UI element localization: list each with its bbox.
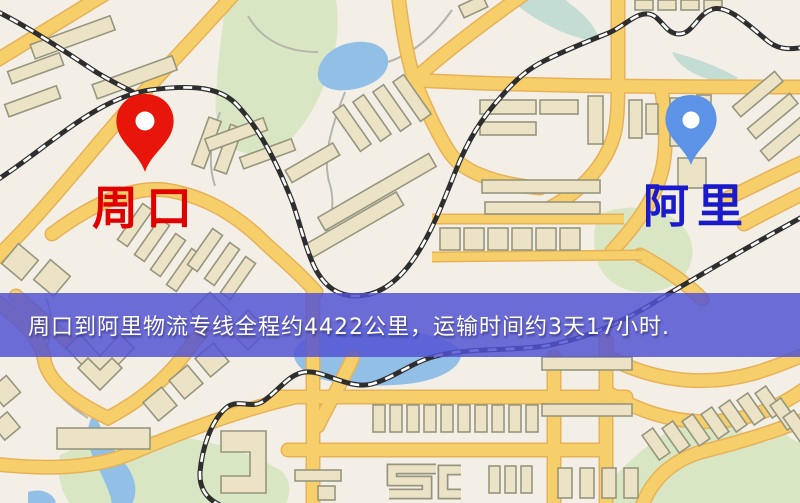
destination-label: 阿里: [643, 179, 751, 233]
route-info-banner: 周口到阿里物流专线全程约4422公里，运输时间约3天17小时.: [0, 293, 800, 357]
map-canvas: 周口 阿里: [0, 0, 800, 503]
route-info-text: 周口到阿里物流专线全程约4422公里，运输时间约3天17小时.: [28, 309, 670, 341]
map-screenshot: 周口 阿里 周口到阿里物流专线全程约4422公里，运输时间约3天17小时.: [0, 0, 800, 503]
origin-label: 周口: [92, 181, 200, 235]
